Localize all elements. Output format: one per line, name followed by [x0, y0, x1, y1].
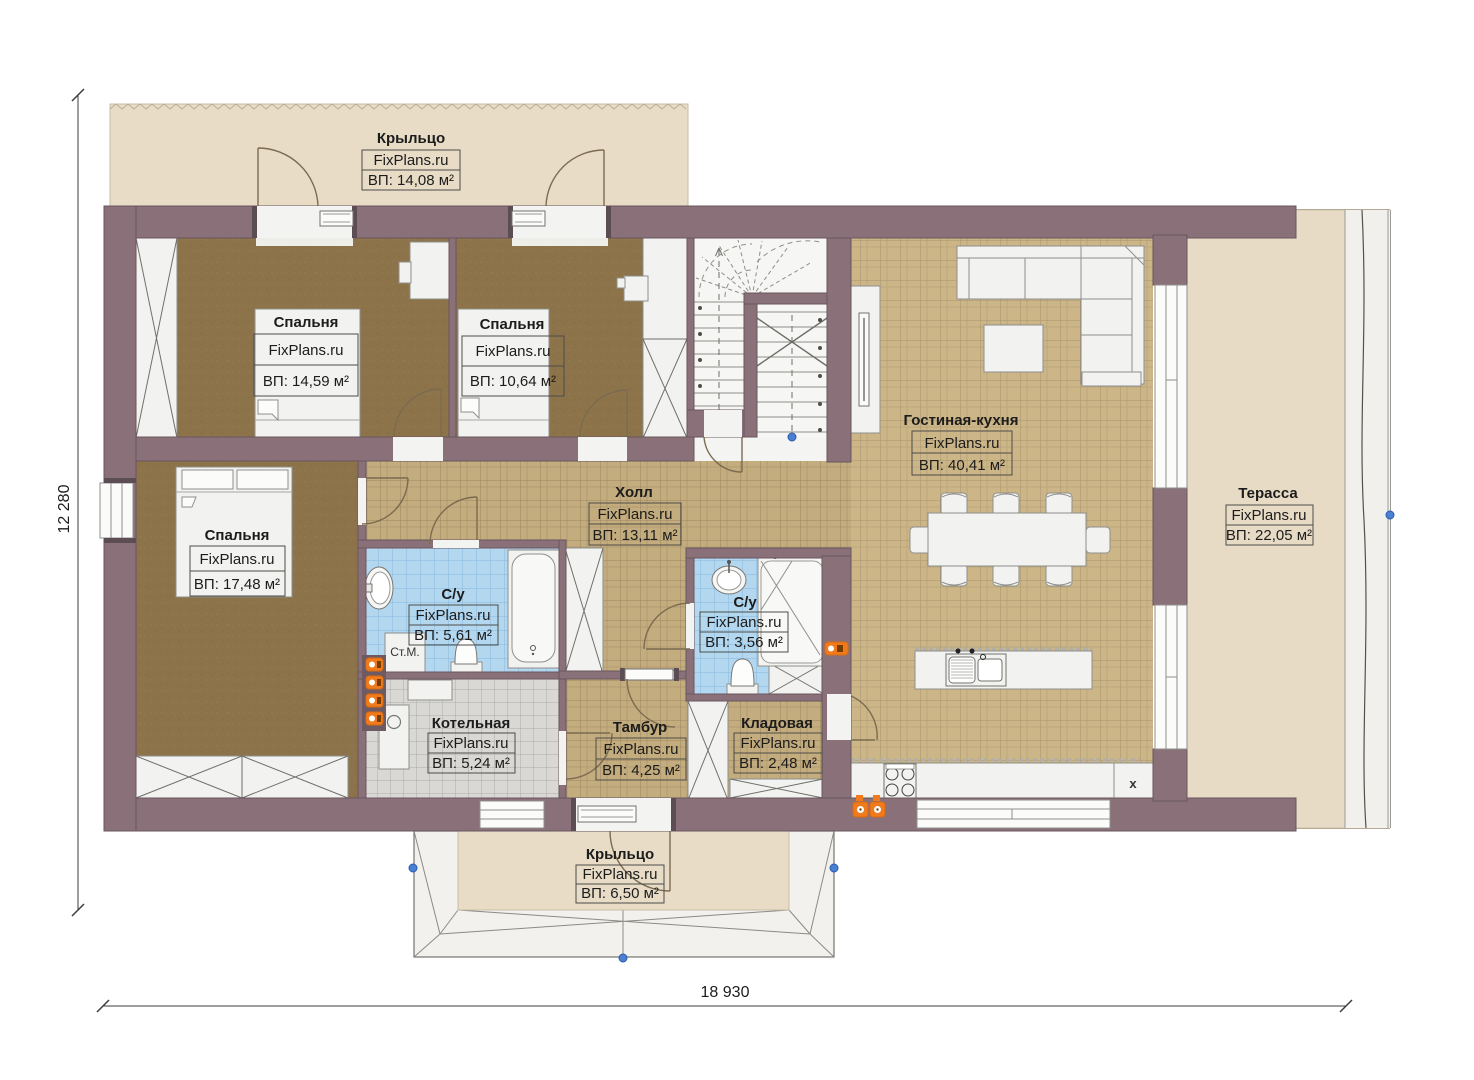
svg-text:18 930: 18 930	[701, 984, 750, 1001]
svg-text:FixPlans.ru: FixPlans.ru	[1231, 507, 1306, 524]
svg-text:ВП: 6,50 м²: ВП: 6,50 м²	[581, 885, 659, 902]
svg-text:ВП: 22,05 м²: ВП: 22,05 м²	[1226, 527, 1312, 544]
svg-text:Спальня: Спальня	[274, 314, 339, 331]
svg-text:ВП: 40,41 м²: ВП: 40,41 м²	[919, 457, 1005, 474]
svg-text:ВП: 2,48 м²: ВП: 2,48 м²	[739, 755, 817, 772]
svg-text:FixPlans.ru: FixPlans.ru	[433, 735, 508, 752]
svg-text:Крыльцо: Крыльцо	[377, 130, 445, 147]
svg-text:ВП: 14,08 м²: ВП: 14,08 м²	[368, 172, 454, 189]
svg-text:С/у: С/у	[733, 594, 757, 611]
svg-text:Спальня: Спальня	[205, 527, 270, 544]
svg-text:FixPlans.ru: FixPlans.ru	[924, 435, 999, 452]
svg-text:Спальня: Спальня	[480, 316, 545, 333]
svg-text:FixPlans.ru: FixPlans.ru	[582, 866, 657, 883]
svg-text:Холл: Холл	[615, 484, 653, 501]
svg-text:12 280: 12 280	[56, 484, 73, 533]
svg-text:С/у: С/у	[441, 586, 465, 603]
svg-text:Ст.М.: Ст.М.	[390, 645, 420, 659]
svg-text:Терасса: Терасса	[1238, 485, 1298, 502]
svg-text:ВП: 10,64 м²: ВП: 10,64 м²	[470, 373, 556, 390]
svg-text:ВП: 14,59 м²: ВП: 14,59 м²	[263, 373, 349, 390]
svg-text:FixPlans.ru: FixPlans.ru	[415, 607, 490, 624]
svg-text:Гостиная-кухня: Гостиная-кухня	[904, 412, 1019, 429]
svg-text:ВП: 17,48 м²: ВП: 17,48 м²	[194, 576, 280, 593]
svg-text:FixPlans.ru: FixPlans.ru	[475, 343, 550, 360]
svg-text:FixPlans.ru: FixPlans.ru	[740, 735, 815, 752]
svg-text:FixPlans.ru: FixPlans.ru	[268, 342, 343, 359]
svg-text:ВП: 5,61 м²: ВП: 5,61 м²	[414, 627, 492, 644]
svg-text:x: x	[1129, 776, 1137, 791]
svg-text:ВП: 5,24 м²: ВП: 5,24 м²	[432, 755, 510, 772]
svg-text:ВП: 13,11 м²: ВП: 13,11 м²	[592, 527, 677, 544]
svg-text:FixPlans.ru: FixPlans.ru	[373, 152, 448, 169]
svg-text:Котельная: Котельная	[432, 715, 511, 732]
svg-text:Тамбур: Тамбур	[613, 719, 667, 736]
svg-text:FixPlans.ru: FixPlans.ru	[199, 551, 274, 568]
svg-text:FixPlans.ru: FixPlans.ru	[603, 741, 678, 758]
svg-text:Крыльцо: Крыльцо	[586, 846, 654, 863]
svg-text:FixPlans.ru: FixPlans.ru	[597, 506, 672, 523]
svg-text:ВП: 3,56 м²: ВП: 3,56 м²	[705, 634, 783, 651]
svg-text:Кладовая: Кладовая	[741, 715, 813, 732]
svg-text:ВП: 4,25 м²: ВП: 4,25 м²	[602, 762, 680, 779]
svg-text:FixPlans.ru: FixPlans.ru	[706, 614, 781, 631]
